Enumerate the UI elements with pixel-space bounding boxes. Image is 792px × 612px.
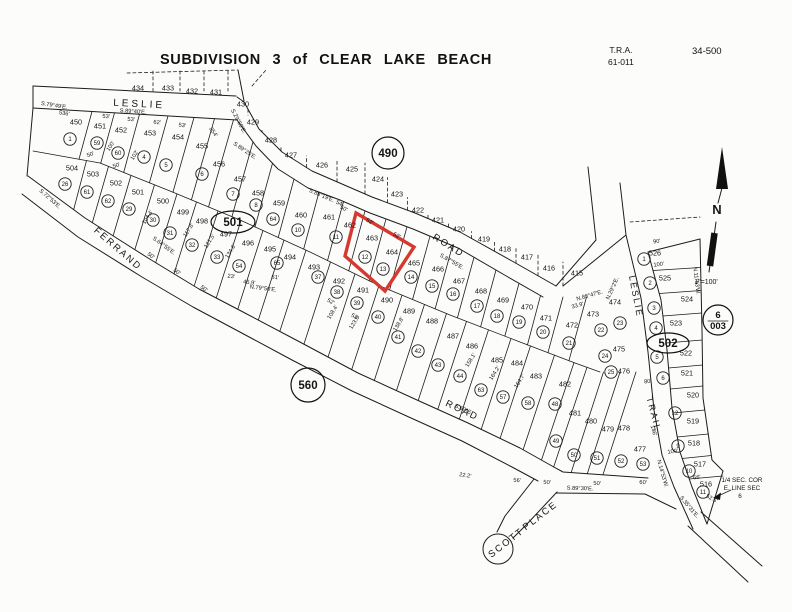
parcel-number: 62 xyxy=(105,199,112,205)
lot-divider xyxy=(663,313,702,316)
adjacent-lot-label: 423 xyxy=(391,190,403,199)
parcel-number: 48 xyxy=(552,402,559,408)
lot-label: 524 xyxy=(681,295,693,304)
adjacent-lot-label: 428 xyxy=(265,136,277,145)
parcel-number: 49 xyxy=(553,439,560,445)
adjacent-lot-label: 425 xyxy=(346,165,358,174)
bearing-dimension-label: N.14°53'W. xyxy=(655,459,669,488)
lot-label: 485 xyxy=(491,356,503,365)
scale-note: 1"=100' xyxy=(694,279,717,286)
lot-label: 525 xyxy=(659,274,671,283)
map-ref-number: 003 xyxy=(710,321,726,332)
lot-label: 502 xyxy=(110,179,122,188)
lot-label: 519 xyxy=(687,417,699,426)
parcel-number: 1 xyxy=(68,137,72,143)
parcel-number: 14 xyxy=(408,275,415,281)
lot-label: 499 xyxy=(177,208,189,217)
quarter-section-corner-note: E. LINE SEC xyxy=(724,485,761,492)
parcel-number: 19 xyxy=(516,320,523,326)
adjacent-back-line xyxy=(127,70,238,73)
lot-label: 484 xyxy=(511,359,523,368)
adjacent-lot-label: 419 xyxy=(478,235,490,244)
lot-label: 523 xyxy=(670,319,682,328)
bearing-dimension-label: 52.6' xyxy=(705,494,719,505)
parcel-number: 37 xyxy=(315,275,322,281)
lot-divider xyxy=(670,386,702,389)
map-ref-number: 502 xyxy=(658,338,677,350)
quarter-section-corner-note: 1/4 SEC. COR xyxy=(722,477,763,484)
parcel-number: 64 xyxy=(270,217,277,223)
bearing-dimension-label: S.89°30'E. xyxy=(567,486,594,493)
road-name-label: LESLIE xyxy=(627,275,645,319)
adjacent-lot-label: 417 xyxy=(521,253,533,262)
parcel-number: 50 xyxy=(571,453,578,459)
parcel-number: 39 xyxy=(354,301,361,307)
adjacent-lot-label: 432 xyxy=(186,87,198,96)
parcel-number: 3 xyxy=(652,306,656,312)
bearing-dimension-label: 56' xyxy=(513,478,521,484)
bearing-dimension-label: 52' xyxy=(365,218,374,227)
lot-label: 465 xyxy=(408,259,420,268)
bearing-dimension-label: 53' xyxy=(178,123,186,130)
lot-label: 467 xyxy=(453,277,465,286)
lot-label: 473 xyxy=(587,310,599,319)
lot-label: 483 xyxy=(530,372,542,381)
parcel-number: 40 xyxy=(375,315,382,321)
lot-label: 468 xyxy=(475,287,487,296)
parcel-number: 7 xyxy=(231,192,235,198)
parcel-number: 43 xyxy=(435,363,442,369)
column-east-boundary xyxy=(700,239,723,471)
lot-divider xyxy=(352,286,379,370)
parcel-number: 26 xyxy=(62,182,69,188)
road-name-label: TRAIL xyxy=(644,396,663,433)
lot-divider xyxy=(304,192,319,249)
map-ref-number: 501 xyxy=(223,217,243,229)
road-name-label: PLACE xyxy=(521,499,560,533)
adjacent-lot-label: 416 xyxy=(543,264,555,273)
bearing-dimension-label: 117.8' xyxy=(183,223,196,239)
parcel-number: 12 xyxy=(362,255,369,261)
parcel-number: 5 xyxy=(164,163,168,169)
bearing-dimension-label: 100' xyxy=(653,261,664,268)
parcel-number: 63 xyxy=(478,388,485,394)
bearing-dimension-label: 33.9' xyxy=(571,301,584,310)
parcel-number: 18 xyxy=(494,314,501,320)
parcel-number: 42 xyxy=(415,349,422,355)
bearing-dimension-label: 90' xyxy=(653,239,661,246)
lot-label: 456 xyxy=(213,160,225,169)
plat-map-canvas: 4344334324314304294284274264254244234224… xyxy=(0,0,792,612)
ne-corner-line xyxy=(238,70,244,101)
road-name-label: ROAD xyxy=(444,398,481,423)
adjacent-lot-label: 424 xyxy=(372,175,384,184)
plat-map-page: SUBDIVISION 3 of CLEAR LAKE BEACH T.R.A.… xyxy=(0,0,792,612)
parcel-number: 10 xyxy=(295,228,302,234)
lot-label: 459 xyxy=(273,199,285,208)
adjacent-lot-label: 431 xyxy=(210,88,222,97)
parcel-number: 8 xyxy=(254,203,258,209)
bearing-dimension-label: 100' xyxy=(667,448,678,455)
bearing-dimension-label: 62' xyxy=(153,120,161,127)
parcel-number: 12 xyxy=(672,411,679,417)
north-label: N xyxy=(712,202,721,217)
se-road-north xyxy=(701,512,762,566)
lot-divider xyxy=(682,456,711,459)
lot-label: 466 xyxy=(432,265,444,274)
lot-label: 491 xyxy=(357,286,369,295)
parcel-number: 20 xyxy=(540,330,547,336)
adjacent-lot-label: 421 xyxy=(432,216,444,225)
lot-label: 453 xyxy=(144,129,156,138)
lot-label: 497 xyxy=(220,230,232,239)
adjacent-lot-label: 434 xyxy=(132,84,144,93)
lot-label: 500 xyxy=(157,197,169,206)
bearing-dimension-label: 536' xyxy=(58,110,69,118)
lot-label: 518 xyxy=(688,439,700,448)
parcel-number: 22 xyxy=(598,328,605,334)
lot-label: 463 xyxy=(366,234,378,243)
adjacent-lot-label: 420 xyxy=(453,225,465,234)
parcel-number: 53 xyxy=(640,462,647,468)
west-boundary xyxy=(27,86,33,176)
lot-label: 522 xyxy=(680,349,692,358)
bearing-dimension-label: 45.9' xyxy=(243,279,256,286)
parcel-number: 31 xyxy=(167,231,174,237)
parcel-number: 54 xyxy=(236,264,243,270)
bearing-dimension-label: 22.2' xyxy=(459,472,472,480)
lot-label: 501 xyxy=(132,188,144,197)
lot-divider xyxy=(548,297,563,353)
bearing-dimension-label: 158.1' xyxy=(465,352,478,368)
parcel-number: 32 xyxy=(189,243,196,249)
corner-dash xyxy=(252,70,266,86)
lot-label: 520 xyxy=(687,391,699,400)
column-top-dash xyxy=(630,217,700,222)
generated-map-content: 4344334324314304294284274264254244234224… xyxy=(38,71,763,560)
lot-label: 455 xyxy=(196,142,208,151)
lot-label: 462 xyxy=(344,221,356,230)
bearing-dimension-label: 50' xyxy=(199,285,209,294)
lot-label: 496 xyxy=(242,239,254,248)
bearing-dimension-label: S.29°59'E. xyxy=(229,108,247,135)
lot-label: 517 xyxy=(694,460,706,469)
bearing-dimension-label: 50' xyxy=(172,268,182,277)
lot-divider xyxy=(481,339,511,430)
parcel-number: 15 xyxy=(429,284,436,290)
bearing-dimension-label: 50' xyxy=(86,151,95,159)
lot-label: 472 xyxy=(566,321,578,330)
parcel-number: 60 xyxy=(115,151,122,157)
lot-label: 494 xyxy=(284,253,296,262)
lot-label: 460 xyxy=(295,211,307,220)
parcel-number: 41 xyxy=(395,335,402,341)
lot-label: 488 xyxy=(426,317,438,326)
bearing-dimension-label: 53' xyxy=(102,114,110,121)
parcel-number: 10 xyxy=(686,469,693,475)
parcel-number: 24 xyxy=(602,354,609,360)
bearing-dimension-label: S.89°25'E. xyxy=(232,141,258,161)
bearing-dimension-label: 121.5' xyxy=(204,233,217,249)
lot-label: 495 xyxy=(264,245,276,254)
parcel-number: 25 xyxy=(608,370,615,376)
lot-label: 489 xyxy=(403,307,415,316)
parcel-number: 11 xyxy=(333,235,340,241)
lot-divider xyxy=(677,434,708,437)
bearing-dimension-label: 60' xyxy=(639,480,647,486)
map-ref-number: 560 xyxy=(298,380,317,392)
lot-label: 521 xyxy=(681,369,693,378)
parcel-number: 16 xyxy=(450,292,457,298)
lot-label: 481 xyxy=(569,409,581,418)
adjacent-lot-label: 429 xyxy=(247,118,259,127)
south-road-edge xyxy=(556,493,676,509)
bearing-dimension-label: 23' xyxy=(227,274,235,281)
lot-label: 477 xyxy=(634,445,646,454)
parcel-number: 30 xyxy=(150,218,157,224)
quarter-section-corner-note: 6 xyxy=(738,493,742,500)
lot-label: 498 xyxy=(196,217,208,226)
parcel-number: 65 xyxy=(274,261,281,267)
adjacent-lot-label: 422 xyxy=(412,206,424,215)
parcel-number: 6 xyxy=(200,172,204,178)
lot-label: 516 xyxy=(700,480,712,489)
bearing-dimension-label: 108.4' xyxy=(327,304,340,320)
bearing-dimension-label: 61' xyxy=(271,275,279,282)
bearing-dimension-label: 134.6' xyxy=(225,243,238,259)
lot-label: 482 xyxy=(559,380,571,389)
parcel-number: 13 xyxy=(380,267,387,273)
parcel-number: 5 xyxy=(655,355,659,361)
bearing-dimension-label: 50' xyxy=(593,481,601,487)
parcel-number: 33 xyxy=(214,255,221,261)
lot-label: 526 xyxy=(649,249,661,258)
lot-label: 475 xyxy=(613,345,625,354)
parcel-number: 38 xyxy=(334,290,341,296)
lot-divider xyxy=(280,250,306,331)
lot-label: 490 xyxy=(381,296,393,305)
bearing-dimension-label: N.88°47'E. xyxy=(576,289,604,302)
parcel-number: 2 xyxy=(648,281,652,287)
parcel-number: 59 xyxy=(94,141,101,147)
lot-label: 458 xyxy=(252,189,264,198)
road-name-label: FERRAND xyxy=(91,225,143,273)
lot-divider xyxy=(418,314,446,401)
lot-label: 454 xyxy=(172,133,184,142)
adjacent-lot-label: 427 xyxy=(285,151,297,160)
lot-label: 478 xyxy=(618,424,630,433)
parcel-number: 58 xyxy=(525,401,532,407)
adjacent-lot-label: 415 xyxy=(571,269,583,278)
parcel-number: 1 xyxy=(642,257,646,263)
adjacent-lot-label: 430 xyxy=(237,100,249,109)
lot-label: 492 xyxy=(333,277,345,286)
adjacent-lot-label: 426 xyxy=(316,161,328,170)
bearing-dimension-label: S.88°19'E. xyxy=(308,188,335,204)
bearing-dimension-label: 50' xyxy=(112,162,121,170)
lot-label: 461 xyxy=(323,213,335,222)
lot-label: 486 xyxy=(466,342,478,351)
lot-label: 452 xyxy=(115,126,127,135)
lot-label: 487 xyxy=(447,332,459,341)
bearing-dimension-label: 53' xyxy=(127,117,135,124)
lot-label: 464 xyxy=(386,248,398,257)
lot-label: 450 xyxy=(70,118,82,127)
lot-label: 451 xyxy=(94,122,106,131)
bearing-dimension-label: 66' xyxy=(693,475,701,482)
parcel-number: 44 xyxy=(457,374,464,380)
lot-label: 469 xyxy=(497,296,509,305)
lot-label: 457 xyxy=(234,175,246,184)
parcel-number: 4 xyxy=(142,155,146,161)
adjacent-lot-label: 418 xyxy=(499,245,511,254)
bearing-dimension-label: 50' xyxy=(339,205,348,214)
parcel-number: 4 xyxy=(654,326,658,332)
bearing-dimension-label: 80' xyxy=(644,379,652,386)
parcel-number: 57 xyxy=(500,395,507,401)
lot-label: 470 xyxy=(521,303,533,312)
parcel-number: 17 xyxy=(474,304,481,310)
parcel-number: 21 xyxy=(566,341,573,347)
lot-label: 503 xyxy=(87,170,99,179)
se-road-south xyxy=(688,526,748,582)
parcel-number: 6 xyxy=(661,376,665,382)
lot-label: 493 xyxy=(308,263,320,272)
map-ref-number: 490 xyxy=(378,148,397,160)
parcel-number: 23 xyxy=(617,321,624,327)
parcel-number: 61 xyxy=(84,190,91,196)
map-ref-number: 6 xyxy=(715,310,720,321)
lot-label: 504 xyxy=(66,164,78,173)
lot-label: 471 xyxy=(540,314,552,323)
road-name-label: SCOTT xyxy=(486,526,526,561)
parcel-number: 29 xyxy=(126,207,133,213)
road-sw-edge xyxy=(237,120,543,297)
bearing-dimension-label: 50' xyxy=(146,252,156,261)
lot-label: 480 xyxy=(585,417,597,426)
parcel-number: 52 xyxy=(618,459,625,465)
adjacent-lot-label: 433 xyxy=(162,84,174,93)
bearing-dimension-label: 50' xyxy=(543,480,551,486)
lot-label: 479 xyxy=(602,425,614,434)
bearing-dimension-label: 164.7' xyxy=(514,373,527,389)
parcel-number: 51 xyxy=(594,456,601,462)
lot-label: 476 xyxy=(618,367,630,376)
